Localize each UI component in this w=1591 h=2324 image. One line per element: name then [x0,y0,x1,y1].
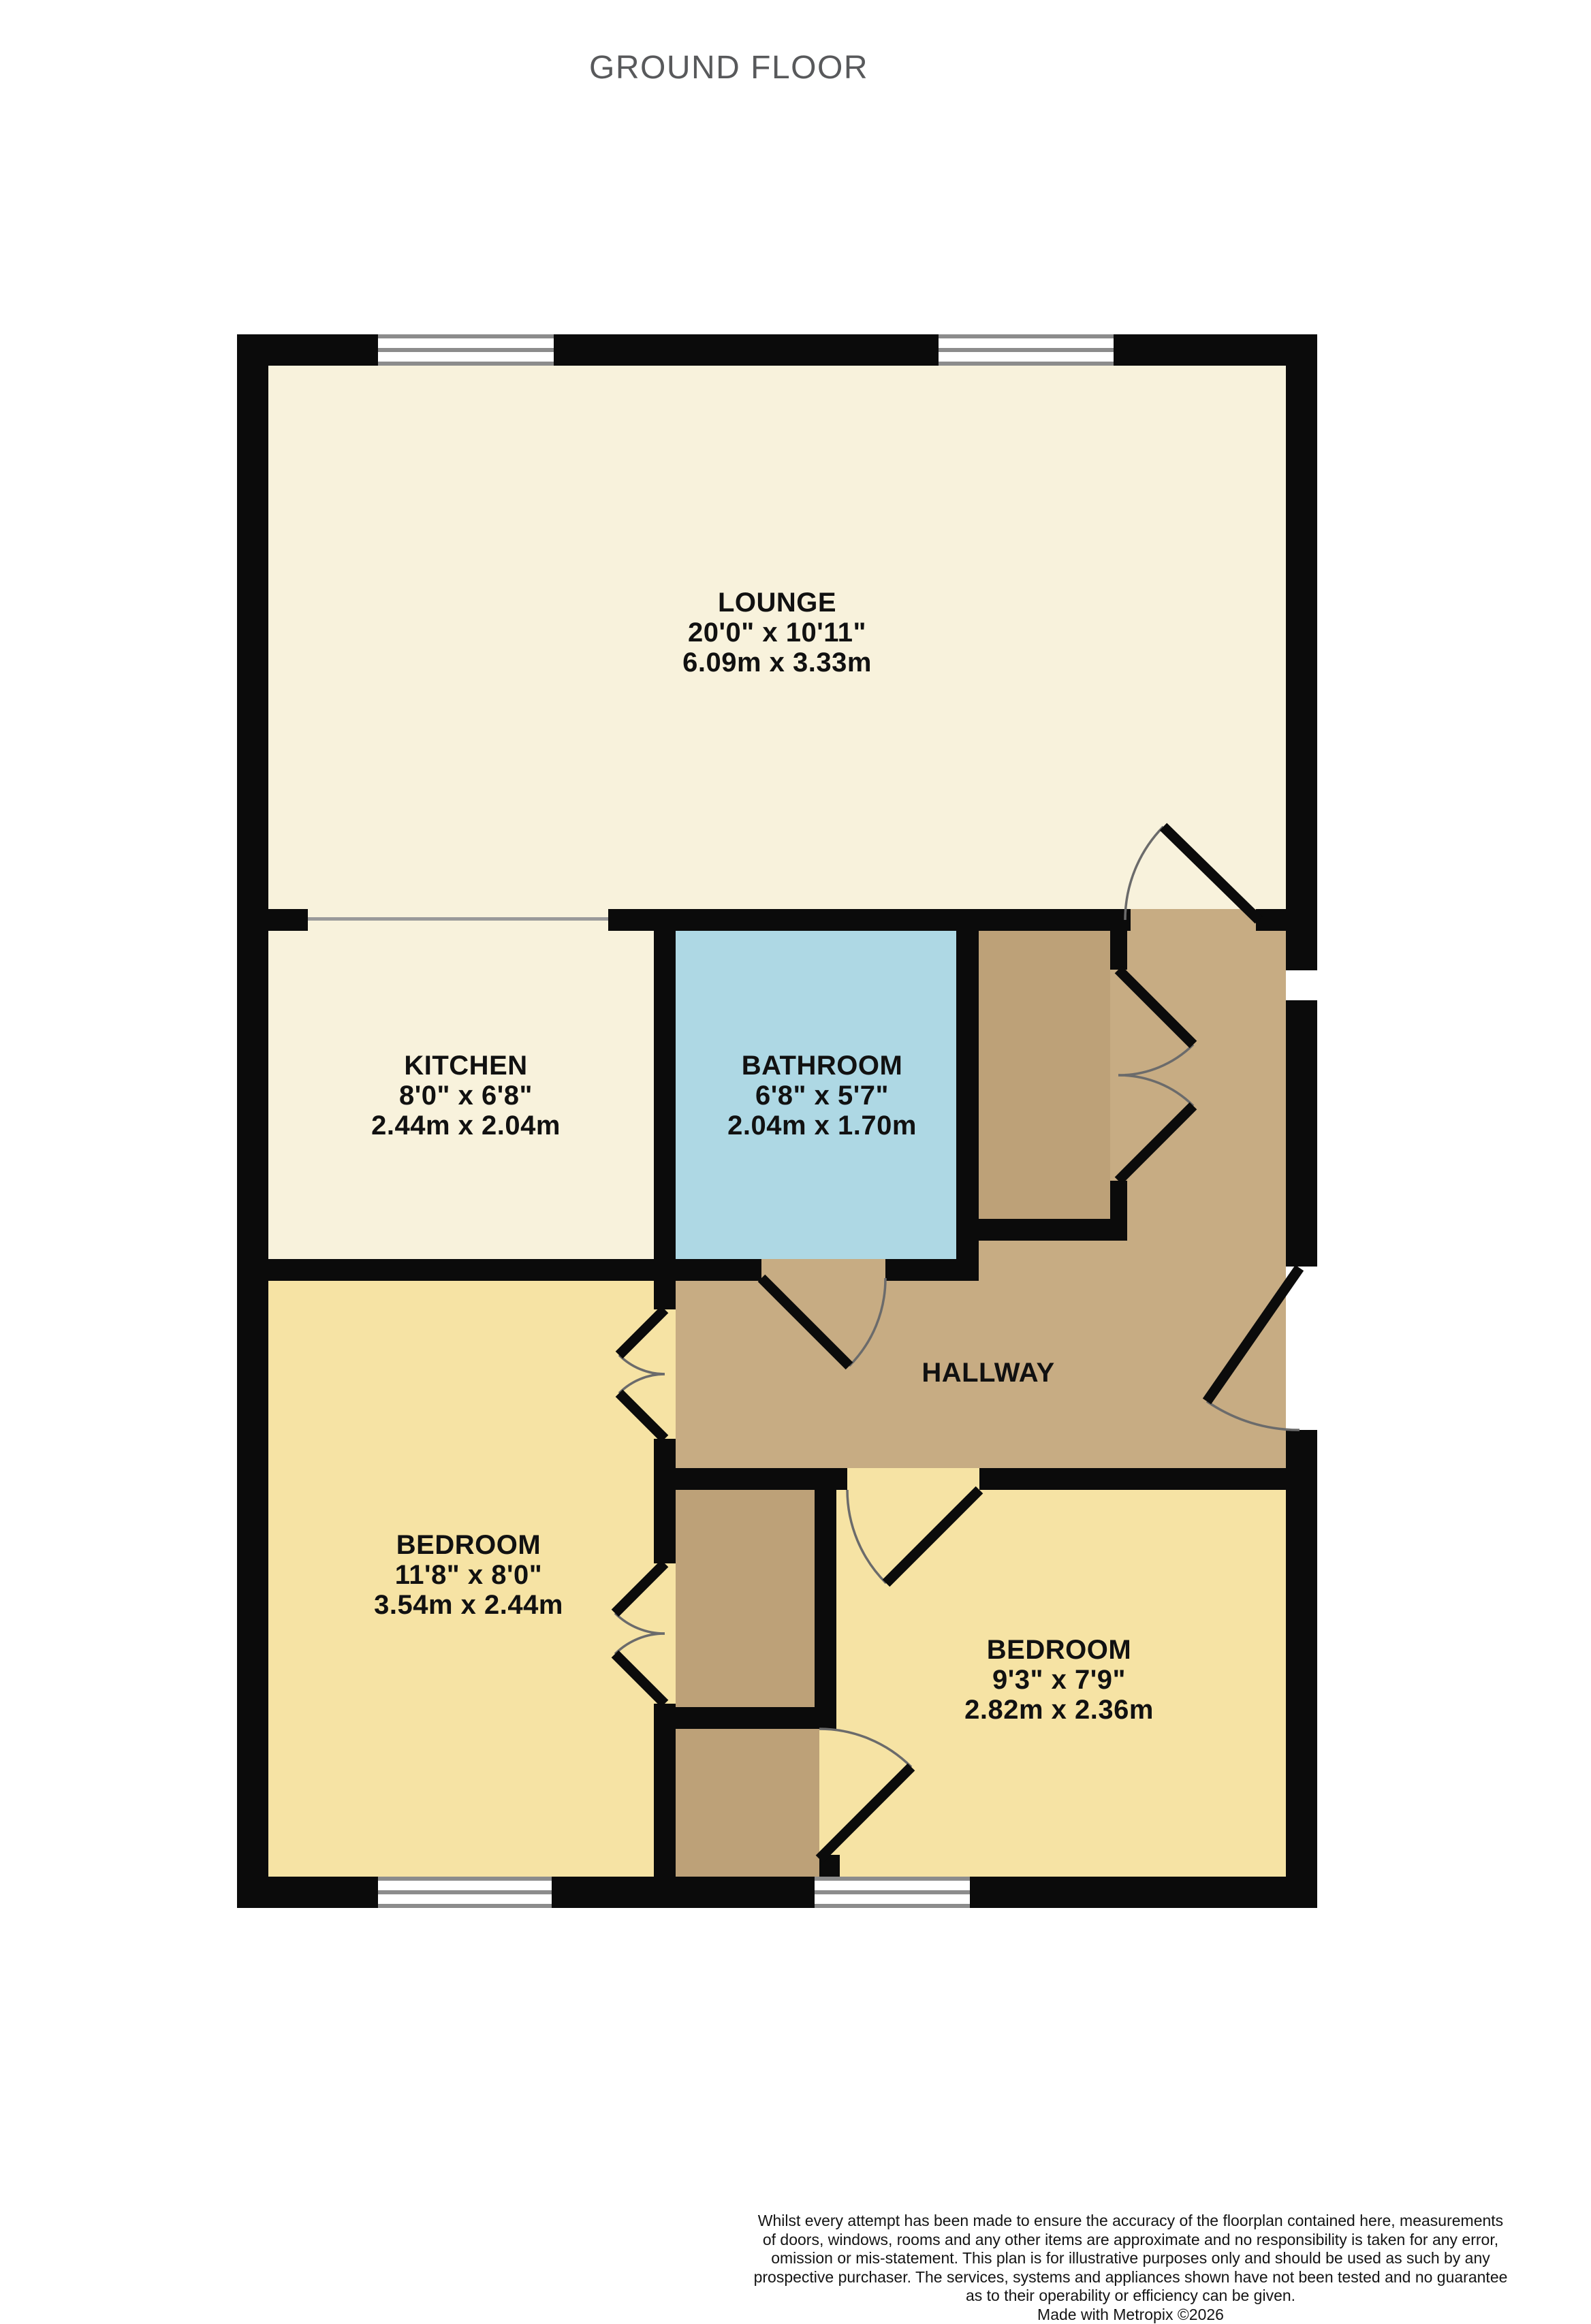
svg-text:HALLWAY: HALLWAY [921,1358,1054,1388]
label-bathroom: BATHROOM 6'8" x 5'7" 2.04m x 1.70m [727,1051,917,1141]
label-bedroom2: BEDROOM 9'3" x 7'9" 2.82m x 2.36m [964,1635,1154,1725]
disclaimer-line: prospective purchaser. The services, sys… [654,2268,1591,2287]
label-bedroom1: BEDROOM 11'8" x 8'0" 3.54m x 2.44m [374,1530,563,1620]
svg-text:8'0" x 6'8": 8'0" x 6'8" [399,1081,533,1111]
disclaimer-line: Whilst every attempt has been made to en… [654,2212,1591,2231]
svg-text:9'3" x 7'9": 9'3" x 7'9" [992,1665,1126,1695]
wall-kitchen-bathroom [654,931,676,1259]
opening-lounge-kitchen [308,917,608,921]
wall-lounge-bottom-right-stub [1256,909,1286,931]
disclaimer-line: omission or mis-statement. This plan is … [654,2249,1591,2268]
wall-cupboard-stub-top [1110,931,1127,970]
svg-text:6.09m x 3.33m: 6.09m x 3.33m [682,648,872,678]
wall-cupboard-mid [654,1707,836,1729]
wall-hall-bottom-right [979,1468,1286,1490]
svg-text:2.04m x 1.70m: 2.04m x 1.70m [727,1111,917,1141]
wall-bedroom1-right-b [654,1439,676,1563]
svg-text:LOUNGE: LOUNGE [718,588,836,618]
wall-bathroom-bottom-left [654,1259,761,1281]
wall-cupboard-stub-bottom [1110,1181,1127,1219]
window-bottom-middle [815,1877,970,1908]
wall-lounge-bottom-main [608,909,1131,931]
svg-text:KITCHEN: KITCHEN [404,1051,527,1081]
disclaimer-line: as to their operability or efficiency ca… [654,2287,1591,2306]
svg-text:2.44m x 2.04m: 2.44m x 2.04m [371,1111,561,1141]
wall-cupboard-upper-right [815,1490,836,1707]
window-bedroom1 [378,1877,552,1908]
credit-line: Made with Metropix ©2026 [654,2306,1591,2324]
svg-text:BEDROOM: BEDROOM [987,1635,1131,1665]
disclaimer-line: of doors, windows, rooms and any other i… [654,2231,1591,2250]
wall-bedroom1-right-a [654,1281,676,1309]
svg-text:20'0" x 10'11": 20'0" x 10'11" [688,618,866,648]
wall-bathroom-bottom-right [885,1259,979,1281]
wall-kitchen-bottom [268,1259,676,1281]
room-cupboard-upper [676,1490,815,1707]
window-lounge-left [378,334,554,366]
svg-text:3.54m x 2.44m: 3.54m x 2.44m [374,1590,563,1620]
floorplan: LOUNGE 20'0" x 10'11" 6.09m x 3.33m KITC… [0,0,1591,2318]
svg-text:BEDROOM: BEDROOM [396,1530,541,1560]
window-right-notch [1286,970,1317,1000]
svg-text:6'8" x 5'7": 6'8" x 5'7" [755,1081,889,1111]
wall-lounge-bottom-stub [268,909,308,931]
wall-hall-bottom-left [676,1468,847,1490]
label-hallway: HALLWAY [921,1358,1054,1388]
svg-text:11'8" x 8'0": 11'8" x 8'0" [395,1560,542,1590]
wall-bedroom1-right-c [654,1704,676,1877]
wall-cupboard-bottom [979,1219,1127,1241]
svg-text:2.82m x 2.36m: 2.82m x 2.36m [964,1695,1154,1725]
room-airing-cupboard [979,931,1110,1219]
svg-text:BATHROOM: BATHROOM [742,1051,903,1081]
disclaimer: Whilst every attempt has been made to en… [654,2212,1591,2324]
wall-bathroom-right [956,909,979,1281]
room-cupboard-lower [676,1729,819,1877]
window-lounge-right [939,334,1114,366]
